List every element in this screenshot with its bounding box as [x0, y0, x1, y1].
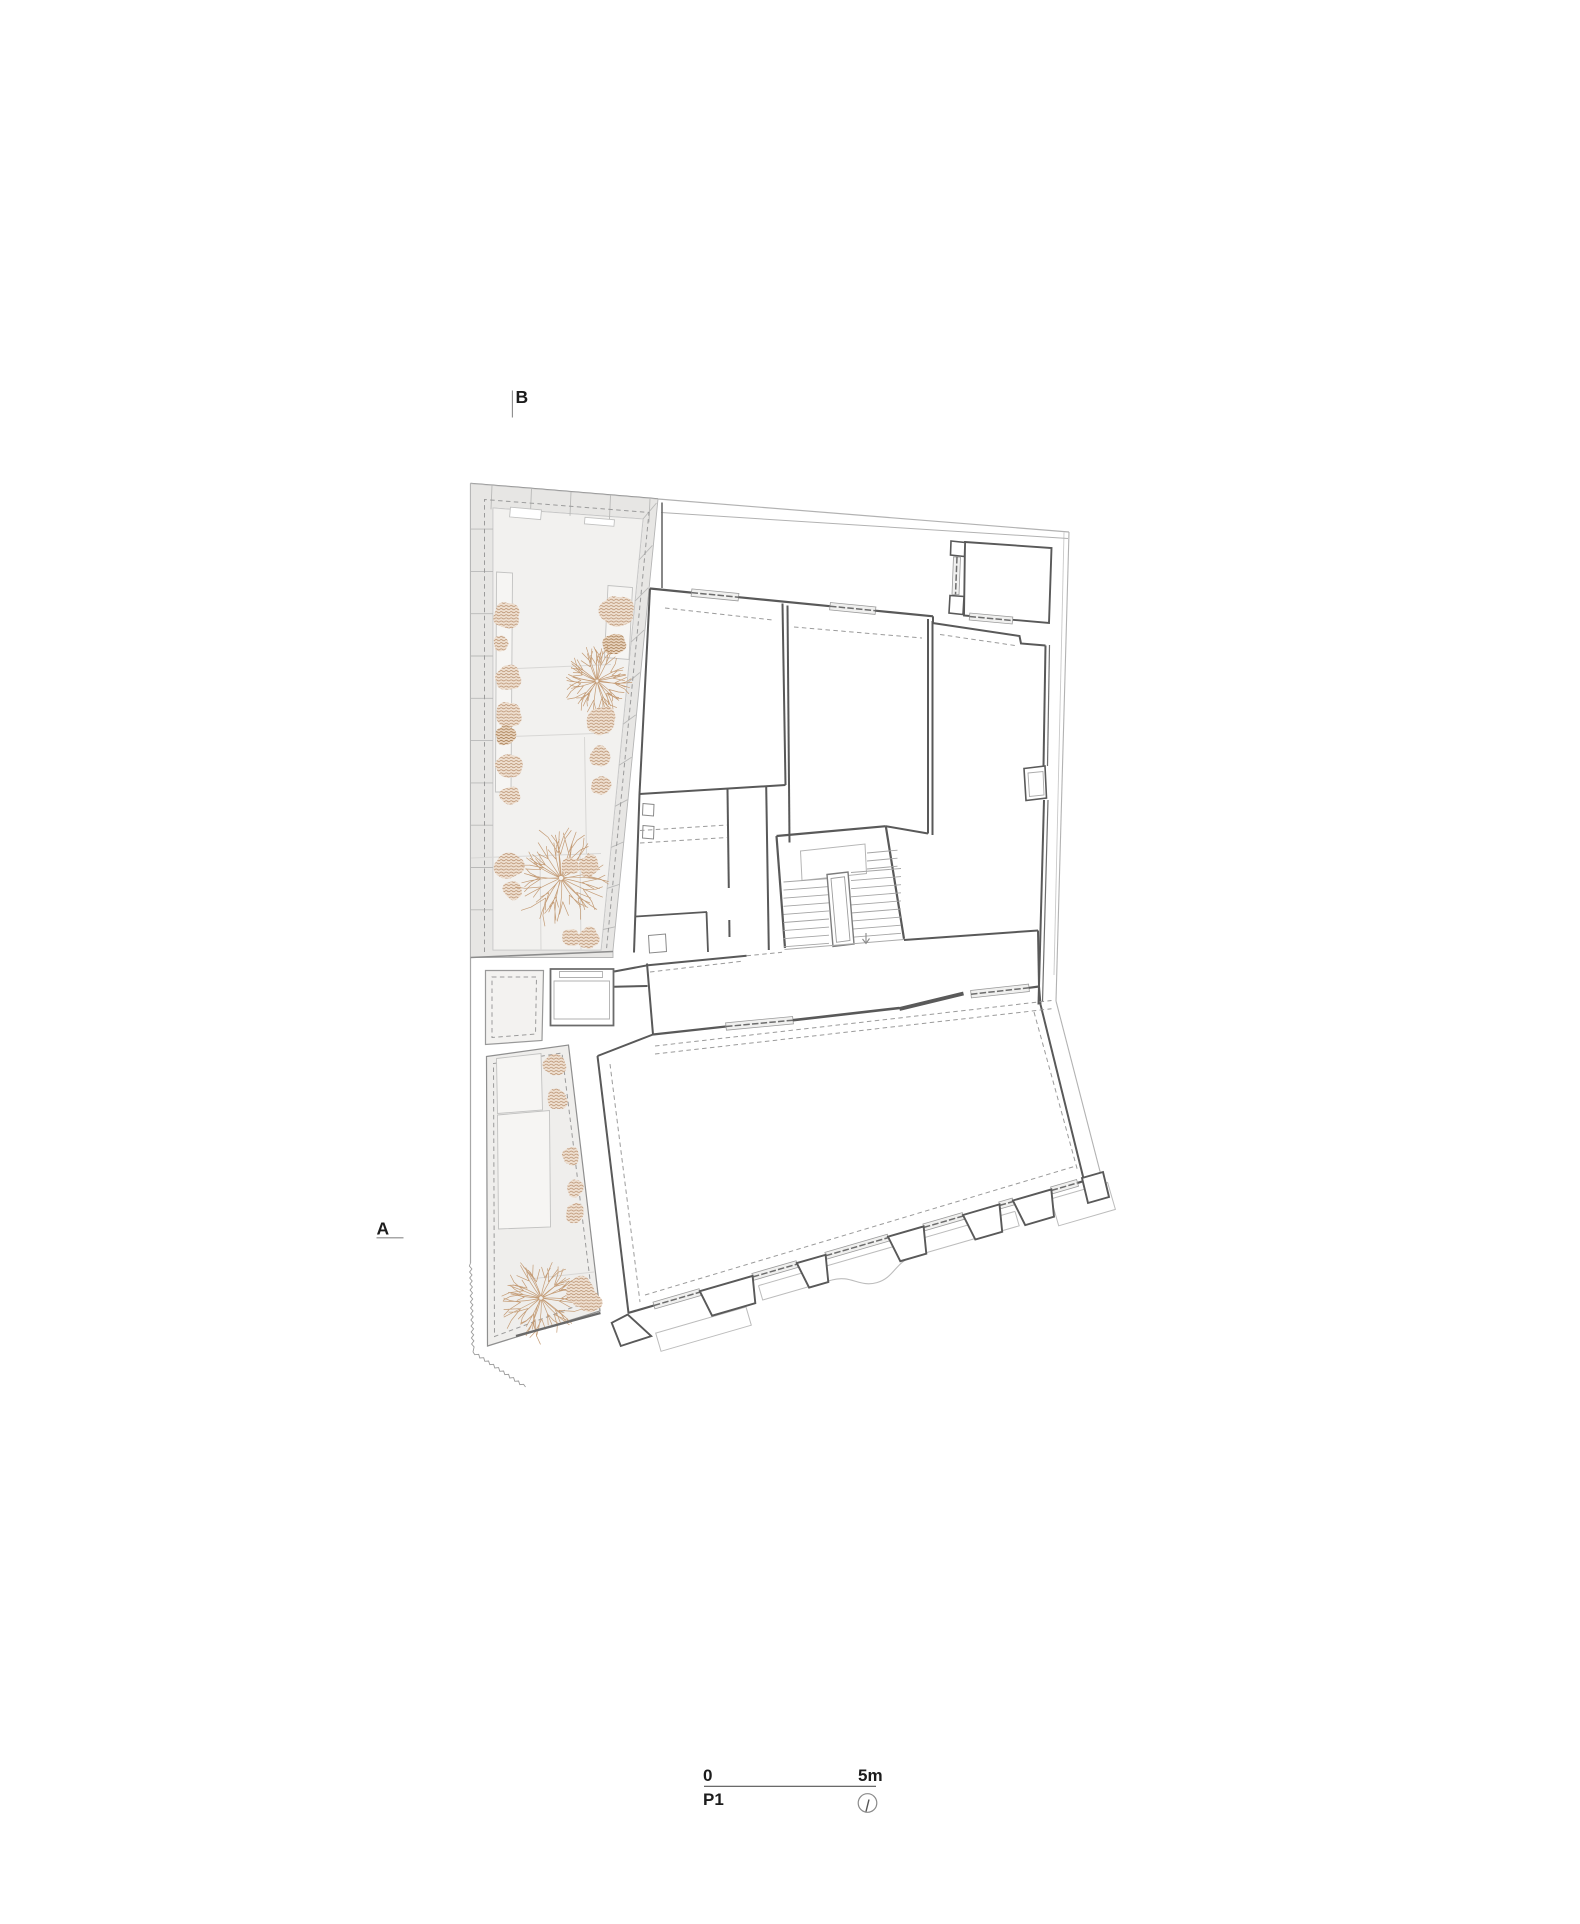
svg-text:A: A [377, 1219, 390, 1239]
svg-text:5m: 5m [858, 1766, 883, 1785]
svg-text:0: 0 [703, 1766, 712, 1785]
svg-text:P1: P1 [703, 1790, 724, 1809]
svg-text:B: B [516, 387, 529, 407]
